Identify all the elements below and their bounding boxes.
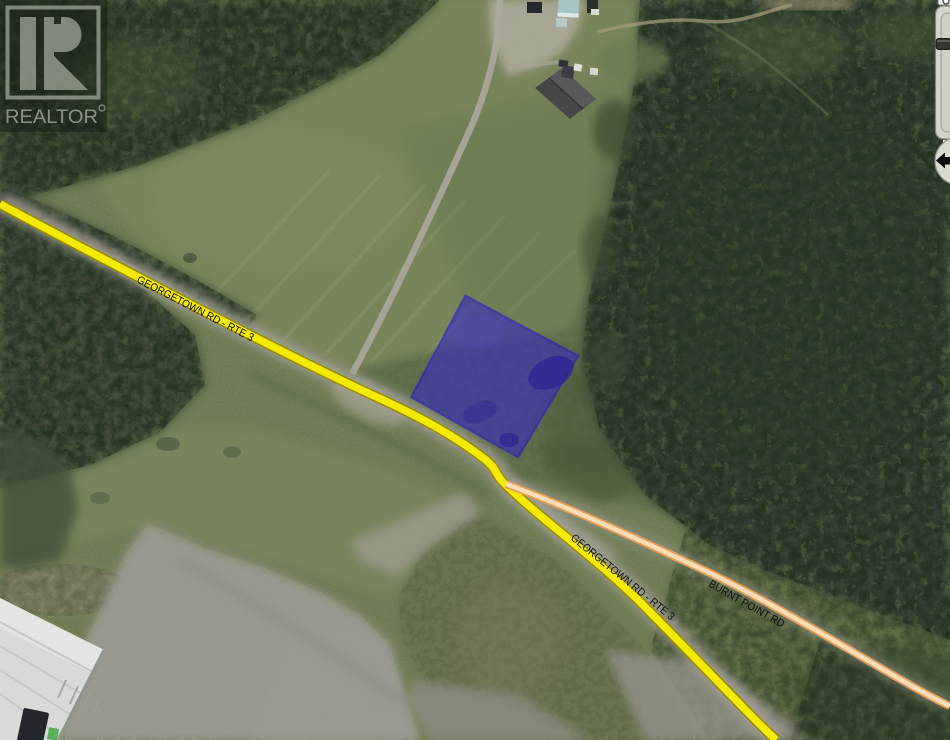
svg-text:REALTOR: REALTOR <box>5 106 98 128</box>
